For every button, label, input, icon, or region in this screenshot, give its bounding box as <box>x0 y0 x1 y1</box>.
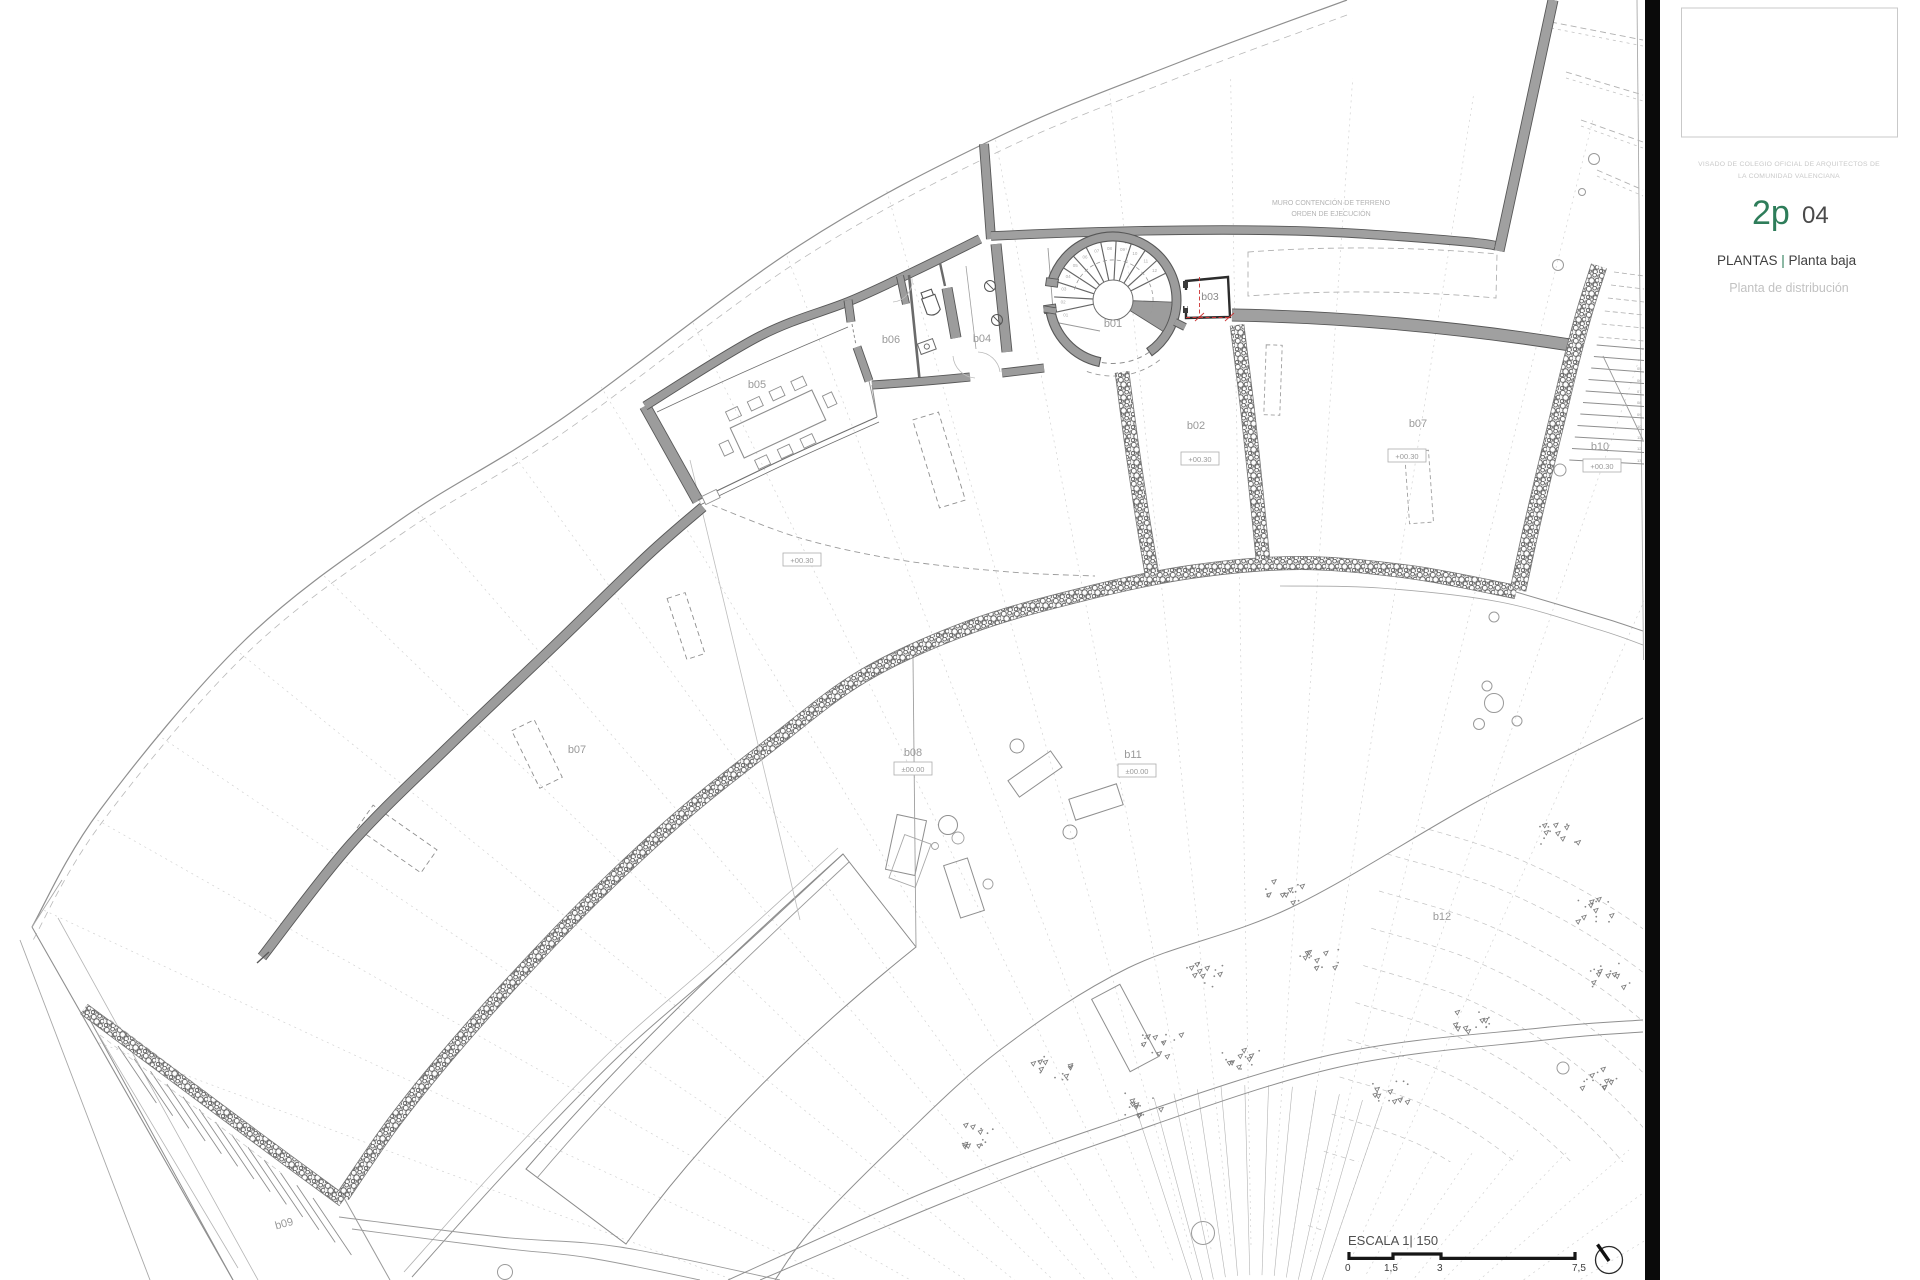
svg-text:7,5: 7,5 <box>1572 1263 1586 1274</box>
svg-text:3: 3 <box>1437 1263 1443 1274</box>
svg-text:b05: b05 <box>748 379 766 391</box>
svg-text:11: 11 <box>1143 258 1148 263</box>
svg-text:b02: b02 <box>1187 420 1205 432</box>
svg-text:Planta de distribución: Planta de distribución <box>1729 281 1849 295</box>
svg-text:±00.00: ±00.00 <box>902 765 925 774</box>
svg-text:b06: b06 <box>882 334 900 346</box>
svg-text:0: 0 <box>1345 1263 1351 1274</box>
svg-text:+00.30: +00.30 <box>790 556 813 565</box>
svg-text:04: 04 <box>1802 202 1829 229</box>
svg-text:03: 03 <box>1061 287 1067 292</box>
svg-text:MURO CONTENCIÓN DE TERRENO: MURO CONTENCIÓN DE TERRENO <box>1272 198 1391 207</box>
svg-text:12: 12 <box>1637 446 1642 451</box>
svg-text:ORDEN DE EJECUCIÓN: ORDEN DE EJECUCIÓN <box>1291 209 1370 218</box>
svg-text:12: 12 <box>1152 268 1158 273</box>
svg-text:+00.30: +00.30 <box>1590 462 1613 471</box>
svg-text:b08: b08 <box>904 747 922 759</box>
svg-text:06: 06 <box>1082 255 1088 260</box>
svg-text:02: 02 <box>1061 300 1067 305</box>
svg-text:ESCALA 1| 150: ESCALA 1| 150 <box>1348 1233 1438 1248</box>
svg-text:04: 04 <box>1066 274 1072 279</box>
svg-text:09: 09 <box>1120 247 1126 252</box>
svg-text:±00.00: ±00.00 <box>1126 767 1149 776</box>
svg-text:05: 05 <box>1637 366 1642 371</box>
svg-text:13: 13 <box>1637 458 1642 463</box>
svg-text:b12: b12 <box>1433 911 1451 923</box>
svg-text:LA COMUNIDAD VALENCIANA: LA COMUNIDAD VALENCIANA <box>1738 173 1840 180</box>
svg-text:b10: b10 <box>1591 441 1609 453</box>
svg-text:PLANTAS | Planta baja: PLANTAS | Planta baja <box>1717 253 1857 268</box>
svg-text:b01: b01 <box>1104 318 1122 330</box>
svg-text:VISADO DE COLEGIO OFICIAL DE A: VISADO DE COLEGIO OFICIAL DE ARQUITECTOS… <box>1698 161 1880 168</box>
svg-text:2p: 2p <box>1752 194 1790 232</box>
svg-text:b11: b11 <box>1124 749 1142 761</box>
svg-text:+00.30: +00.30 <box>1188 455 1211 464</box>
svg-text:05: 05 <box>1073 263 1079 268</box>
svg-text:07: 07 <box>1094 249 1100 254</box>
svg-text:b07: b07 <box>568 744 586 756</box>
svg-text:b07: b07 <box>1409 418 1427 430</box>
svg-text:b03: b03 <box>1201 291 1219 303</box>
svg-text:06: 06 <box>1637 378 1642 383</box>
svg-text:01: 01 <box>1063 312 1069 317</box>
svg-text:10: 10 <box>1132 251 1138 256</box>
svg-text:09: 09 <box>1637 412 1642 417</box>
svg-text:08: 08 <box>1637 400 1642 405</box>
svg-text:07: 07 <box>1637 389 1642 394</box>
svg-text:b04: b04 <box>973 333 991 345</box>
svg-text:08: 08 <box>1107 246 1113 251</box>
svg-text:1,5: 1,5 <box>1384 1263 1398 1274</box>
svg-text:+00.30: +00.30 <box>1395 452 1418 461</box>
